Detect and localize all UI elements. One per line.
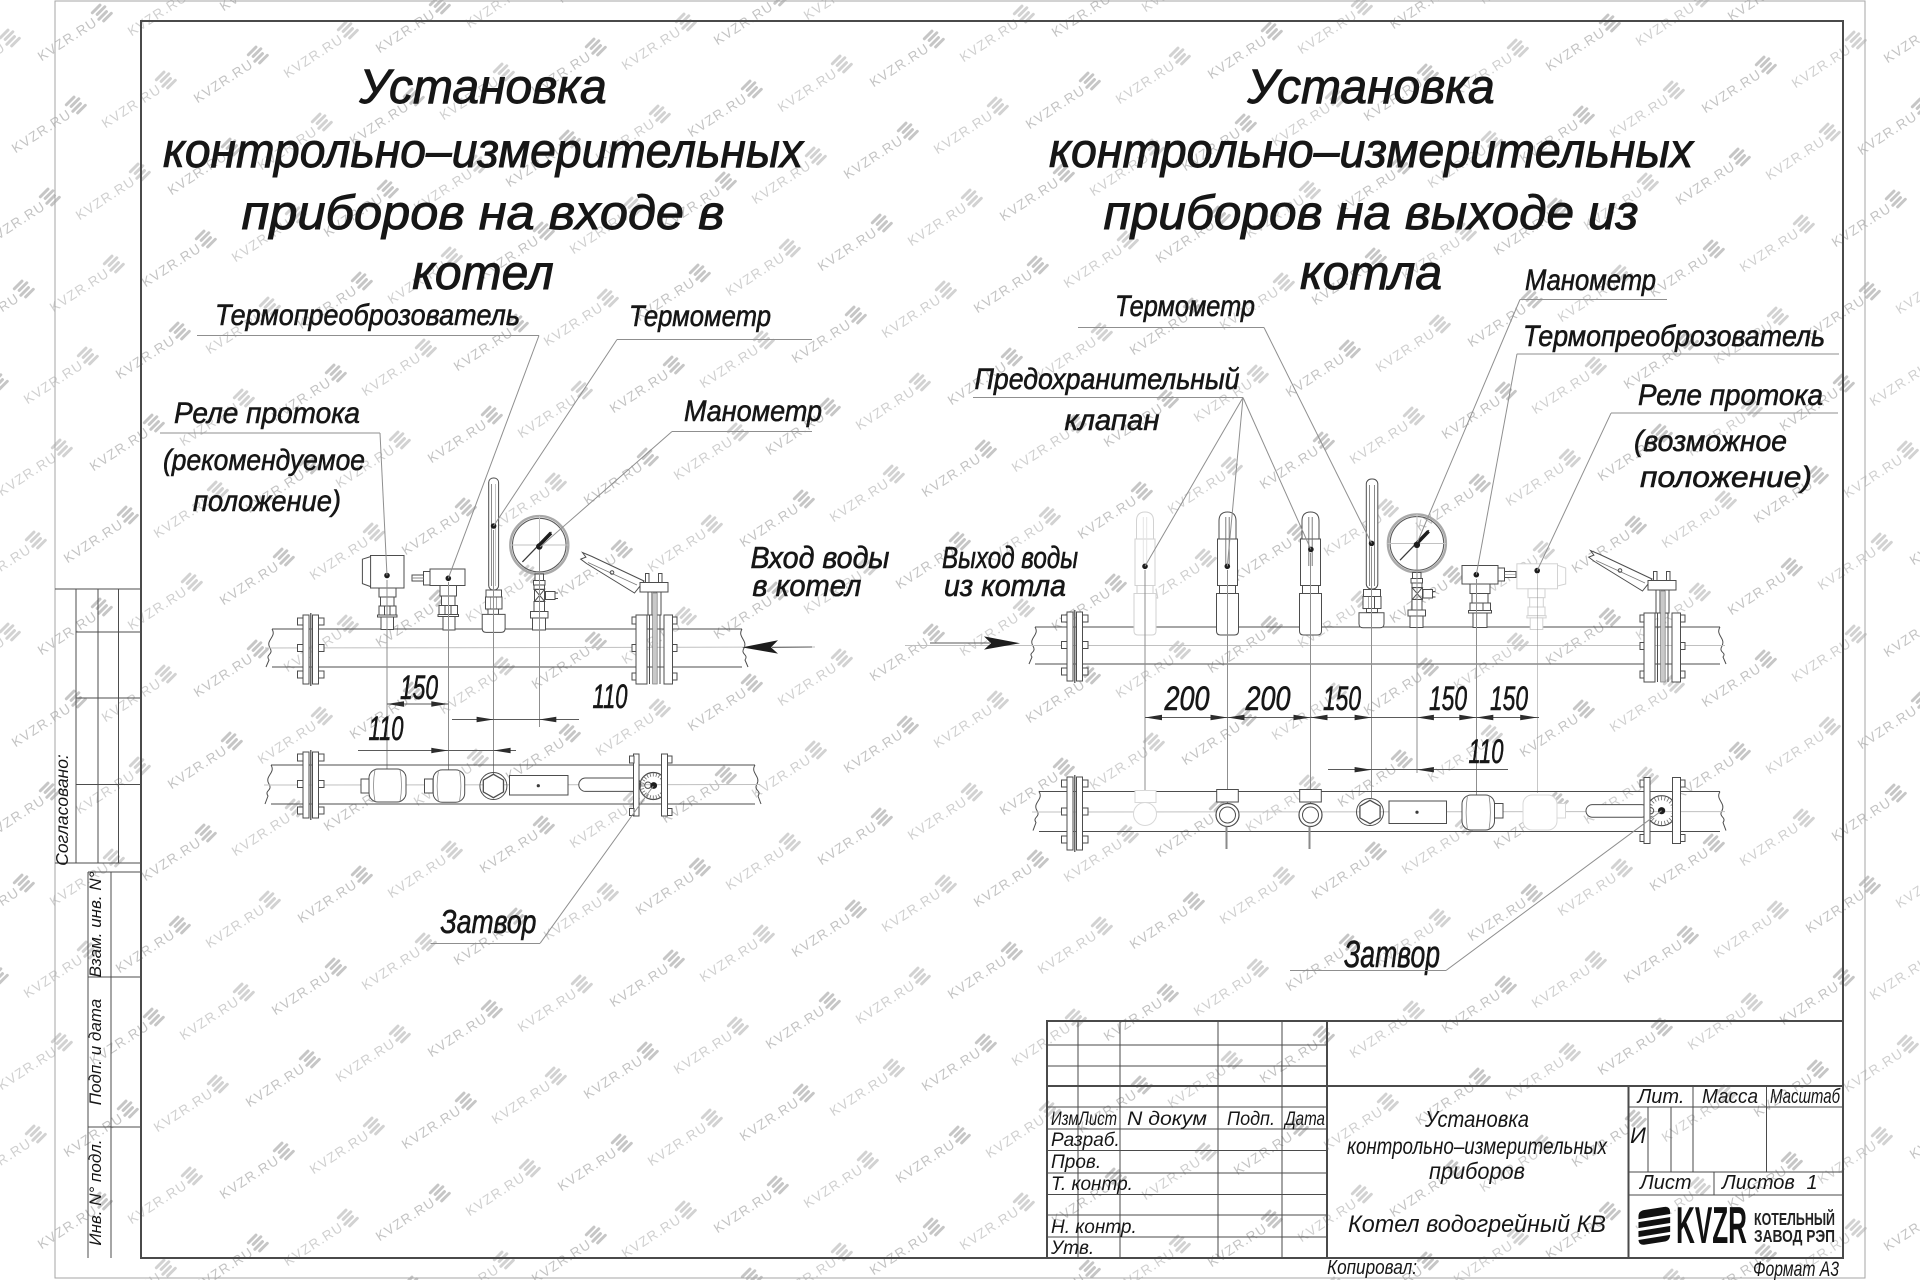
svg-text:Инв. N° подл.: Инв. N° подл.: [86, 1139, 105, 1245]
svg-text:ЗАВОД РЭП: ЗАВОД РЭП: [1754, 1226, 1835, 1246]
svg-text:Пров.: Пров.: [1051, 1152, 1101, 1173]
svg-text:KVZR: KVZR: [1676, 1197, 1747, 1255]
svg-text:положение): положение): [193, 485, 341, 518]
svg-text:150: 150: [1490, 680, 1528, 718]
svg-text:приборов на входе в: приборов на входе в: [242, 187, 725, 240]
svg-text:ИзмЛист: ИзмЛист: [1051, 1109, 1117, 1130]
svg-text:Установка: Установка: [358, 61, 606, 114]
svg-text:150: 150: [400, 669, 438, 707]
svg-text:Термопреоброзователь: Термопреоброзователь: [215, 299, 520, 332]
svg-text:Копировал:: Копировал:: [1327, 1257, 1417, 1279]
svg-text:Формат А3: Формат А3: [1753, 1258, 1839, 1280]
svg-text:положение): положение): [1640, 461, 1812, 494]
svg-text:Т. контр.: Т. контр.: [1051, 1174, 1133, 1195]
svg-text:котел: котел: [412, 247, 554, 300]
svg-text:Разраб.: Разраб.: [1051, 1130, 1120, 1151]
svg-text:Лист: Лист: [1638, 1172, 1692, 1194]
svg-text:110: 110: [369, 710, 404, 748]
svg-text:110: 110: [1469, 733, 1504, 771]
svg-text:Масштаб: Масштаб: [1770, 1086, 1841, 1108]
svg-text:Манометр: Манометр: [1525, 264, 1656, 297]
svg-text:Дата: Дата: [1283, 1109, 1325, 1130]
svg-text:(рекомендуемое: (рекомендуемое: [163, 444, 365, 477]
svg-text:котла: котла: [1300, 247, 1442, 300]
svg-text:1: 1: [1806, 1172, 1817, 1194]
svg-text:Н. контр.: Н. контр.: [1051, 1217, 1137, 1238]
svg-text:приборов: приборов: [1429, 1158, 1525, 1184]
svg-text:Реле протока: Реле протока: [1638, 379, 1823, 412]
svg-text:Согласовано:: Согласовано:: [52, 754, 72, 866]
svg-text:Котел водогрейный КВ: Котел водогрейный КВ: [1348, 1211, 1606, 1238]
svg-text:Установка: Установка: [1246, 61, 1494, 114]
svg-text:Термометр: Термометр: [629, 300, 771, 333]
svg-text:Предохранительный: Предохранительный: [975, 363, 1240, 396]
svg-text:150: 150: [1323, 680, 1361, 718]
svg-text:контрольно–измерительных: контрольно–измерительных: [1347, 1133, 1608, 1159]
svg-text:Утв.: Утв.: [1050, 1238, 1094, 1259]
svg-text:контрольно–измерительных: контрольно–измерительных: [163, 125, 805, 178]
svg-text:Масса: Масса: [1702, 1086, 1758, 1108]
svg-text:из котла: из котла: [944, 568, 1066, 603]
svg-text:приборов на выходе из: приборов на выходе из: [1104, 187, 1639, 240]
svg-text:клапан: клапан: [1065, 404, 1160, 437]
svg-text:Затвор: Затвор: [440, 903, 536, 940]
svg-text:Реле протока: Реле протока: [174, 397, 360, 430]
svg-text:Установка: Установка: [1424, 1106, 1529, 1132]
svg-text:200: 200: [1245, 680, 1291, 718]
svg-text:Термопреоброзователь: Термопреоброзователь: [1523, 320, 1825, 353]
svg-text:(возможное: (возможное: [1634, 425, 1787, 458]
svg-text:контрольно–измерительных: контрольно–измерительных: [1049, 125, 1695, 178]
svg-text:Подп.: Подп.: [1227, 1109, 1275, 1130]
svg-text:150: 150: [1429, 680, 1467, 718]
svg-text:Затвор: Затвор: [1344, 934, 1440, 976]
svg-text:Листов: Листов: [1720, 1172, 1795, 1194]
svg-text:Термометр: Термометр: [1115, 290, 1255, 323]
svg-text:Подп. и дата: Подп. и дата: [86, 999, 105, 1105]
svg-text:Взам. инв. N°: Взам. инв. N°: [86, 871, 105, 977]
svg-text:Лит.: Лит.: [1636, 1086, 1685, 1108]
svg-text:200: 200: [1164, 680, 1210, 718]
svg-text:N докум: N докум: [1127, 1109, 1207, 1130]
svg-text:110: 110: [593, 678, 628, 716]
svg-text:в котел: в котел: [752, 568, 861, 603]
svg-text:Манометр: Манометр: [684, 395, 822, 428]
svg-text:И: И: [1630, 1123, 1646, 1148]
